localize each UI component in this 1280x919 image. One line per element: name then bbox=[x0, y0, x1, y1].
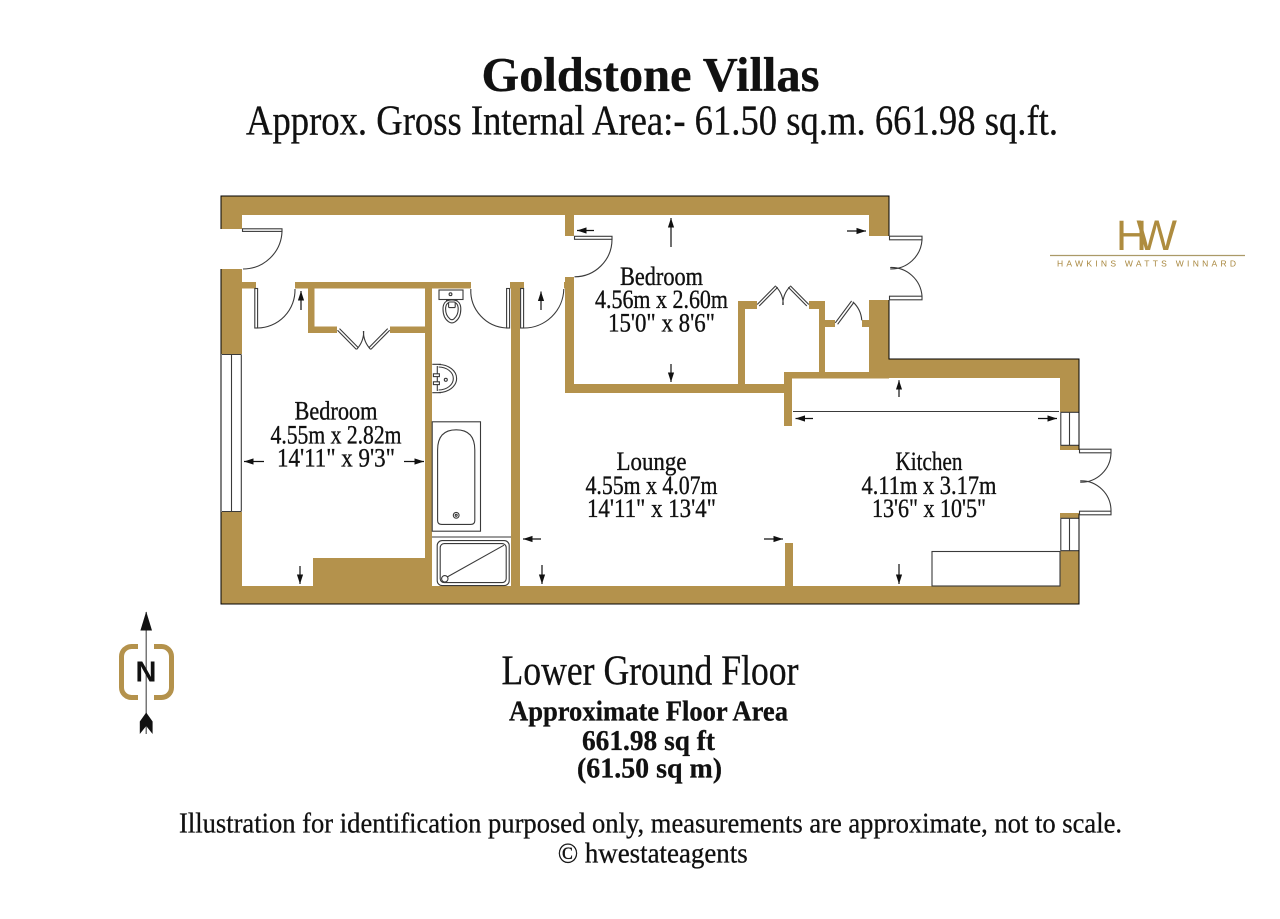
svg-text:Approximate Floor Area: Approximate Floor Area bbox=[509, 696, 788, 728]
svg-text:Goldstone Villas: Goldstone Villas bbox=[482, 47, 820, 102]
svg-text:HW: HW bbox=[1116, 212, 1177, 260]
svg-text:13'6" x 10'5": 13'6" x 10'5" bbox=[872, 494, 986, 523]
svg-text:© hwestateagents: © hwestateagents bbox=[558, 839, 748, 870]
svg-text:HAWKINS WATTS WINNARD: HAWKINS WATTS WINNARD bbox=[1057, 259, 1236, 269]
svg-text:(61.50 sq m): (61.50 sq m) bbox=[577, 753, 722, 785]
svg-text:14'11" x 9'3": 14'11" x 9'3" bbox=[277, 444, 395, 473]
svg-text:Illustration for identificatio: Illustration for identification purposed… bbox=[179, 808, 1122, 840]
svg-text:N: N bbox=[136, 657, 157, 689]
svg-text:Lower Ground Floor: Lower Ground Floor bbox=[502, 649, 799, 695]
svg-text:15'0" x 8'6": 15'0" x 8'6" bbox=[608, 309, 715, 338]
svg-text:Approx. Gross Internal Area:-: Approx. Gross Internal Area:- 61.50 sq.m… bbox=[246, 99, 1058, 145]
svg-text:14'11" x 13'4": 14'11" x 13'4" bbox=[587, 494, 716, 523]
